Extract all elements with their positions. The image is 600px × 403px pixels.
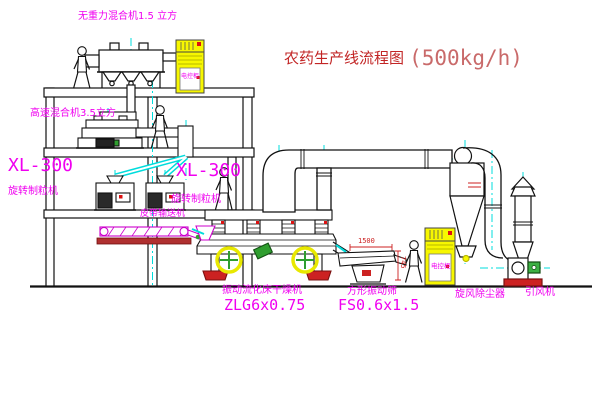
- label-granulator-right-name: 旋转制粒机: [171, 195, 221, 205]
- drawing-title: 农药生产线流程图 (500kg/h): [284, 46, 523, 70]
- label-granulator-left-model: XL-300: [8, 157, 73, 175]
- induced-draft-fan: [504, 177, 542, 286]
- label-high-speed-mixer: 高速混合机3.5立方: [30, 109, 116, 119]
- exhaust-ducting: [263, 149, 452, 212]
- title-capacity: (500kg/h): [409, 46, 523, 70]
- dimension-sieve-length: 1500: [358, 238, 375, 245]
- label-granulator-right-model: XL-300: [176, 162, 241, 180]
- granulator-left: [94, 176, 136, 210]
- flowchart-canvas: 农药生产线流程图 (500kg/h) 无重力混合机1.5 立方 高速混合机3.5…: [0, 0, 600, 403]
- dimension-sieve-height: 745: [399, 256, 406, 269]
- label-dryer-name: 振动流化床干燥机: [222, 286, 302, 296]
- fluid-bed-dryer: [192, 210, 352, 280]
- label-sieve-model: FS0.6x1.5: [338, 298, 419, 313]
- title-text: 农药生产线流程图: [284, 49, 404, 67]
- belt-conveyor: [97, 227, 202, 244]
- label-fan: 引风机: [525, 288, 555, 298]
- control-cabinet-top: [176, 40, 204, 93]
- square-sieve: [338, 244, 406, 284]
- label-cyclone: 旋风除尘器: [455, 290, 505, 300]
- gravity-free-mixer: [85, 43, 176, 115]
- worker-ground-floor: [406, 241, 423, 283]
- label-cabinet-top-text: 电控柜: [181, 74, 199, 80]
- label-dryer-model: ZLG6x0.75: [224, 298, 305, 313]
- dryer-bellows: [212, 220, 328, 234]
- label-belt-conveyor: 皮带输送机: [140, 210, 185, 219]
- control-cabinet-ground: [425, 228, 455, 285]
- label-cabinet-ground-text: 电控柜: [431, 263, 451, 270]
- label-granulator-left-name: 旋转制粒机: [8, 187, 58, 197]
- label-gravity-free-mixer: 无重力混合机1.5 立方: [78, 12, 177, 22]
